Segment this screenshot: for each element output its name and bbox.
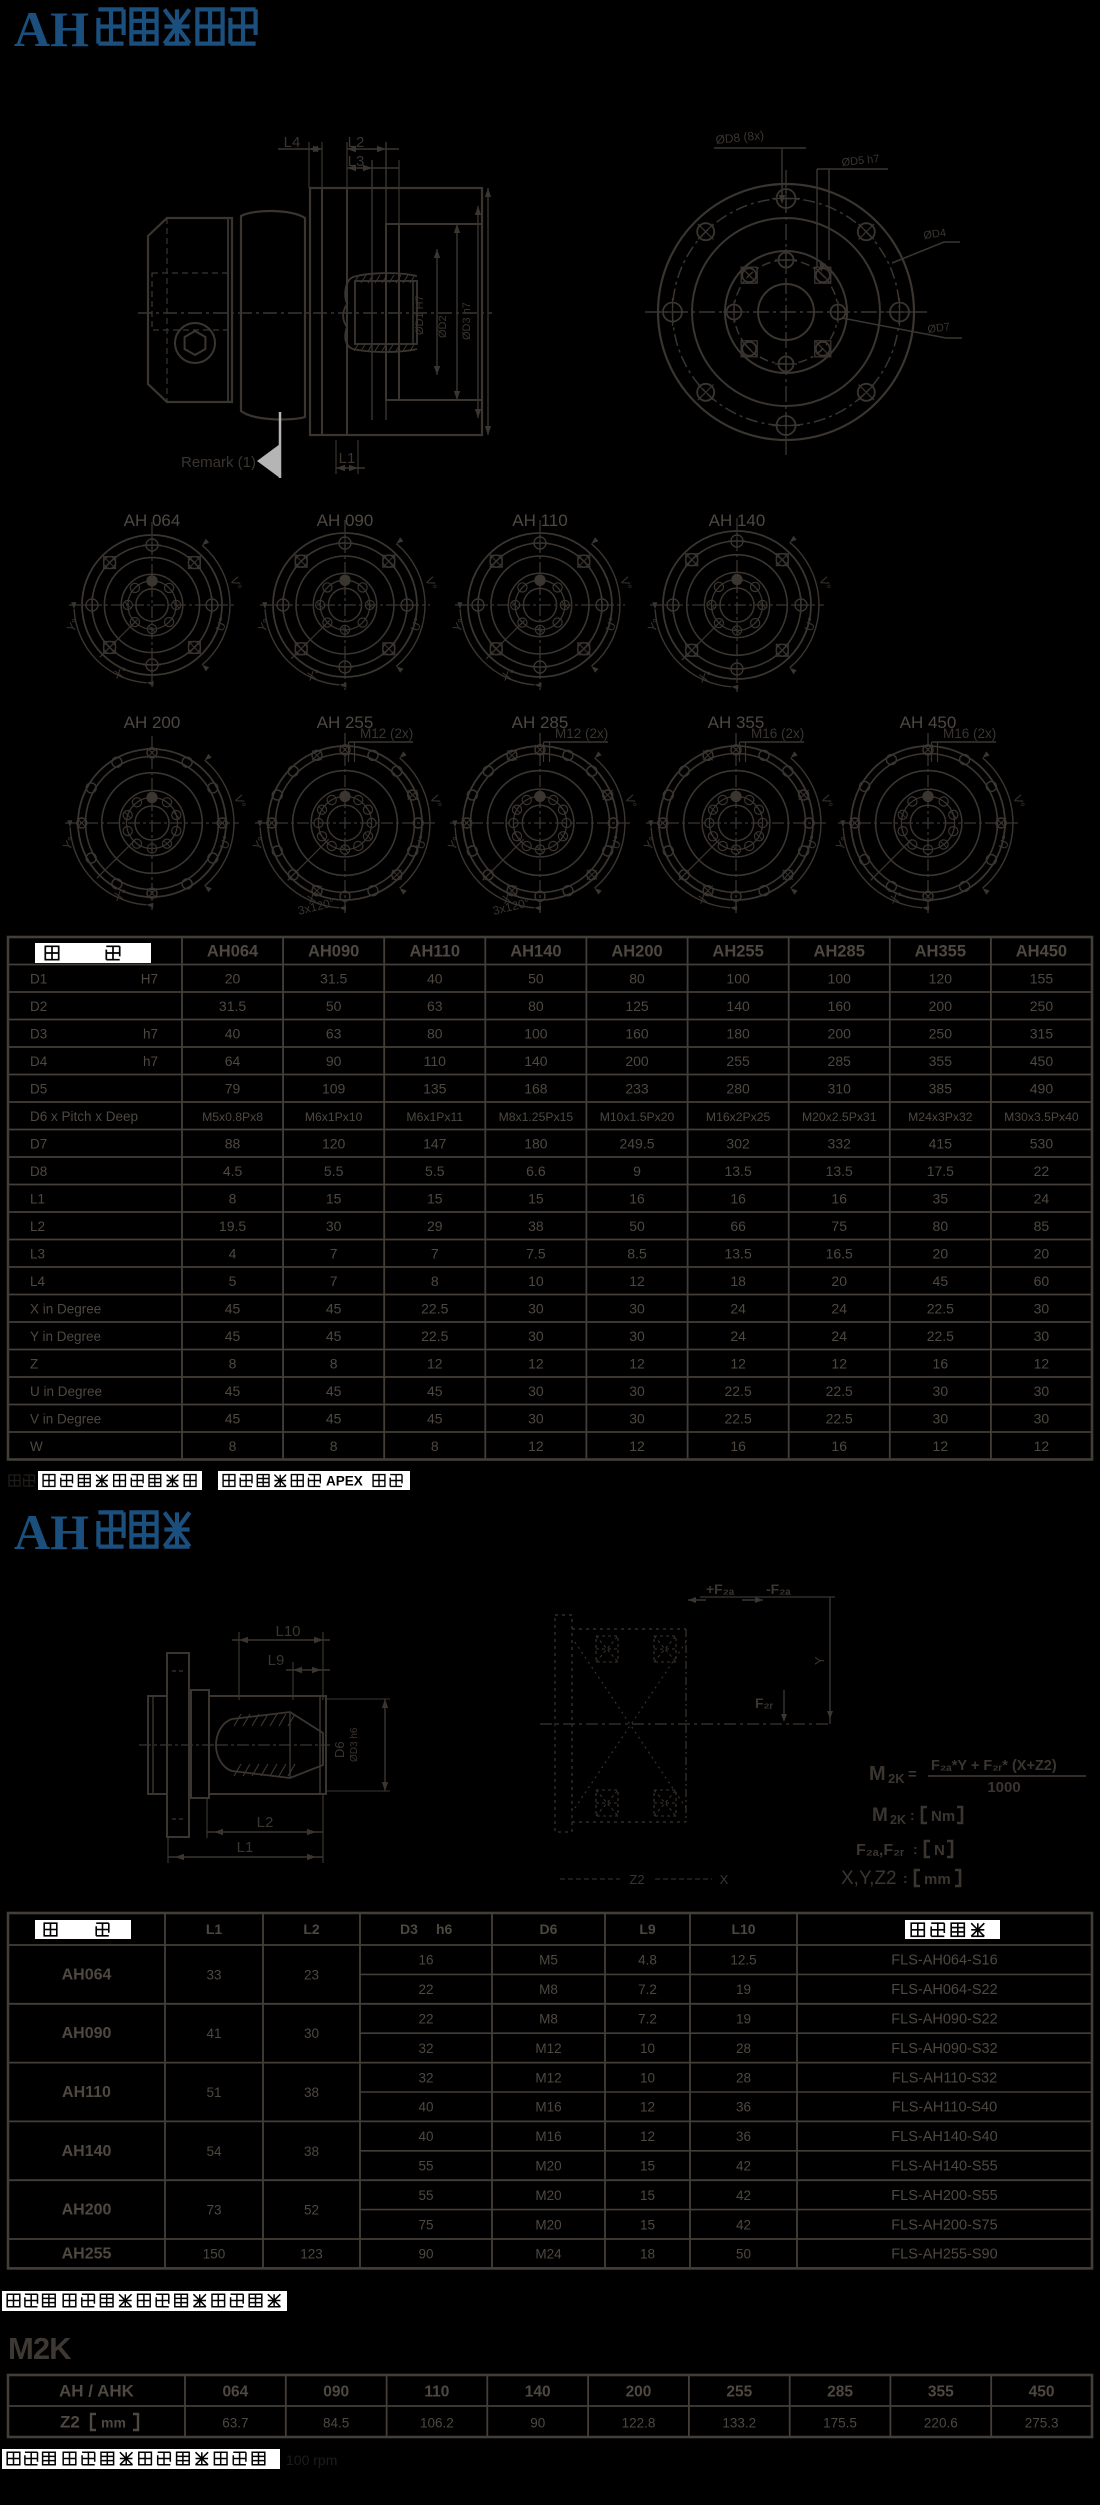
svg-text:30: 30 — [933, 1383, 949, 1399]
svg-text:AH140: AH140 — [510, 942, 561, 960]
svg-text:M10x1.5Px20: M10x1.5Px20 — [600, 1110, 675, 1124]
svg-text:66: 66 — [730, 1218, 746, 1234]
svg-text:16: 16 — [831, 1438, 847, 1454]
svg-text:18: 18 — [730, 1273, 746, 1289]
svg-text:FLS-AH064-S16: FLS-AH064-S16 — [891, 1953, 997, 1969]
svg-text:12: 12 — [629, 1355, 645, 1371]
svg-text:12.5: 12.5 — [730, 1953, 756, 1968]
svg-text:45: 45 — [427, 1410, 443, 1426]
svg-text:30: 30 — [1034, 1383, 1050, 1399]
svg-text:30: 30 — [629, 1383, 645, 1399]
svg-text:24: 24 — [831, 1300, 847, 1316]
svg-text:180: 180 — [524, 1135, 548, 1151]
svg-text:16: 16 — [730, 1190, 746, 1206]
svg-text:D3: D3 — [400, 1921, 418, 1937]
svg-text:285: 285 — [828, 1053, 852, 1069]
svg-text:45: 45 — [326, 1328, 342, 1344]
svg-text:mm: mm — [924, 1871, 951, 1888]
svg-text:M16 (2x): M16 (2x) — [943, 726, 996, 741]
svg-text::: : — [903, 1870, 908, 1886]
svg-text:90: 90 — [326, 1053, 342, 1069]
svg-text:38: 38 — [304, 2144, 319, 2159]
svg-text:160: 160 — [625, 1025, 649, 1041]
svg-text:Y: Y — [812, 1656, 827, 1665]
svg-text:FLS-AH255-S90: FLS-AH255-S90 — [891, 2247, 997, 2263]
svg-text:22.5: 22.5 — [421, 1328, 448, 1344]
svg-text:249.5: 249.5 — [619, 1135, 654, 1151]
svg-text:L9: L9 — [268, 1652, 285, 1669]
svg-text:30: 30 — [528, 1410, 544, 1426]
svg-text:33: 33 — [206, 1967, 221, 1982]
svg-text:M6x1Px10: M6x1Px10 — [305, 1110, 363, 1124]
svg-text:h7: h7 — [143, 1054, 158, 1069]
svg-text:D8: D8 — [30, 1164, 47, 1179]
svg-text:Z: Z — [30, 1356, 38, 1371]
svg-text:ØD3 h6: ØD3 h6 — [349, 1727, 360, 1762]
svg-text:M30x3.5Px40: M30x3.5Px40 — [1004, 1110, 1079, 1124]
svg-text:AH110: AH110 — [410, 942, 460, 960]
svg-text:250: 250 — [1030, 998, 1054, 1014]
svg-text:16: 16 — [730, 1438, 746, 1454]
svg-text:H7: H7 — [141, 971, 158, 986]
svg-text:5: 5 — [229, 1273, 237, 1289]
svg-text:AH140: AH140 — [62, 2143, 112, 2160]
svg-text:Y in Degree: Y in Degree — [30, 1329, 101, 1344]
svg-text:D1: D1 — [30, 971, 47, 986]
svg-text:302: 302 — [726, 1135, 750, 1151]
svg-text:45: 45 — [326, 1410, 342, 1426]
svg-text:22: 22 — [418, 1982, 433, 1997]
svg-text:AH200: AH200 — [611, 942, 662, 960]
svg-text:FLS-AH140-S40: FLS-AH140-S40 — [891, 2129, 997, 2145]
svg-text:385: 385 — [929, 1080, 953, 1096]
svg-text:255: 255 — [726, 2384, 752, 2401]
svg-text:50: 50 — [629, 1218, 645, 1234]
svg-text:22.5: 22.5 — [421, 1300, 448, 1316]
svg-text:415: 415 — [929, 1135, 953, 1151]
svg-text:200: 200 — [929, 998, 953, 1014]
svg-text:FLS-AH200-S75: FLS-AH200-S75 — [891, 2217, 997, 2233]
svg-text:M16: M16 — [535, 2100, 561, 2115]
svg-text:15: 15 — [640, 2188, 655, 2203]
svg-text:16: 16 — [418, 1953, 433, 1968]
svg-text:12: 12 — [933, 1438, 949, 1454]
svg-text:D6: D6 — [332, 1741, 347, 1758]
svg-text:L2: L2 — [30, 1219, 45, 1234]
svg-text:AH255: AH255 — [62, 2246, 112, 2263]
svg-text:280: 280 — [726, 1080, 750, 1096]
svg-text:30: 30 — [629, 1300, 645, 1316]
svg-text:40: 40 — [418, 2129, 433, 2144]
svg-text:332: 332 — [828, 1135, 852, 1151]
svg-text:55: 55 — [418, 2159, 433, 2174]
svg-text:135: 135 — [423, 1080, 447, 1096]
svg-text:FLS-AH090-S22: FLS-AH090-S22 — [891, 2012, 997, 2028]
svg-text:AH285: AH285 — [814, 942, 865, 960]
svg-text:AH355: AH355 — [915, 942, 966, 960]
svg-text:4.8: 4.8 — [638, 1953, 657, 1968]
svg-text:45: 45 — [326, 1383, 342, 1399]
svg-text:64: 64 — [225, 1053, 241, 1069]
svg-text:200: 200 — [626, 2384, 652, 2401]
svg-text:=: = — [908, 1766, 917, 1783]
svg-text:32: 32 — [418, 2041, 433, 2056]
svg-text:100 rpm: 100 rpm — [286, 2452, 337, 2468]
svg-text:35: 35 — [933, 1190, 949, 1206]
svg-text:M6x1Px11: M6x1Px11 — [406, 1110, 463, 1124]
svg-text:FLS-AH140-S55: FLS-AH140-S55 — [891, 2159, 997, 2175]
svg-text:12: 12 — [1034, 1438, 1050, 1454]
svg-text:FLS-AH200-S55: FLS-AH200-S55 — [891, 2188, 997, 2204]
svg-text:12: 12 — [640, 2100, 655, 2115]
svg-text:22.5: 22.5 — [724, 1383, 751, 1399]
svg-text:FLS-AH090-S32: FLS-AH090-S32 — [891, 2041, 997, 2057]
svg-text:54: 54 — [206, 2144, 222, 2159]
svg-text:7.2: 7.2 — [638, 1982, 657, 1997]
svg-text:D4: D4 — [30, 1054, 48, 1069]
svg-text:M12 (2x): M12 (2x) — [555, 726, 608, 741]
svg-text:D5: D5 — [30, 1081, 47, 1096]
svg-text:8: 8 — [431, 1273, 439, 1289]
svg-text:L4: L4 — [30, 1274, 46, 1289]
svg-text:220.6: 220.6 — [924, 2416, 958, 2431]
svg-text:M16x2Px25: M16x2Px25 — [706, 1110, 771, 1124]
svg-text:140: 140 — [726, 998, 750, 1014]
svg-text:X,Y,Z2: X,Y,Z2 — [841, 1868, 897, 1889]
svg-text:80: 80 — [629, 970, 645, 986]
svg-text:22: 22 — [1034, 1163, 1050, 1179]
svg-text:22.5: 22.5 — [724, 1410, 751, 1426]
svg-text:28: 28 — [736, 2041, 751, 2056]
svg-text:85: 85 — [1034, 1218, 1050, 1234]
svg-text::: : — [913, 1841, 918, 1857]
svg-text:M16: M16 — [535, 2129, 561, 2144]
svg-text:24: 24 — [831, 1328, 847, 1344]
svg-text:45: 45 — [225, 1383, 241, 1399]
svg-text:19: 19 — [736, 2012, 751, 2027]
svg-text:51: 51 — [206, 2085, 221, 2100]
svg-text:80: 80 — [528, 998, 544, 1014]
svg-text:88: 88 — [225, 1135, 241, 1151]
svg-text:L1: L1 — [30, 1191, 45, 1206]
svg-text:12: 12 — [528, 1438, 544, 1454]
svg-text:L3: L3 — [30, 1246, 45, 1261]
svg-text:45: 45 — [225, 1410, 241, 1426]
svg-text:9: 9 — [633, 1163, 641, 1179]
svg-text:M24: M24 — [535, 2247, 562, 2262]
svg-text:160: 160 — [828, 998, 852, 1014]
svg-text:D6: D6 — [540, 1921, 558, 1937]
svg-text:120: 120 — [322, 1135, 346, 1151]
svg-text:45: 45 — [427, 1383, 443, 1399]
svg-text:AH 200: AH 200 — [124, 713, 181, 732]
svg-text:30: 30 — [528, 1383, 544, 1399]
svg-text:122.8: 122.8 — [622, 2416, 656, 2431]
svg-text:D6 x Pitch x Deep: D6 x Pitch x Deep — [30, 1109, 138, 1124]
svg-text:AH064: AH064 — [62, 1966, 112, 1983]
svg-text:24: 24 — [1034, 1190, 1050, 1206]
svg-text:L9: L9 — [639, 1921, 656, 1937]
svg-text:7.5: 7.5 — [526, 1245, 546, 1261]
svg-text:064: 064 — [222, 2384, 248, 2401]
svg-text:42: 42 — [736, 2159, 751, 2174]
svg-text:15: 15 — [640, 2217, 655, 2232]
svg-text:M20: M20 — [535, 2159, 561, 2174]
svg-text:15: 15 — [427, 1190, 443, 1206]
svg-text:12: 12 — [629, 1273, 645, 1289]
svg-text:2K: 2K — [890, 1813, 906, 1827]
svg-text:13.5: 13.5 — [826, 1163, 853, 1179]
svg-text:19.5: 19.5 — [219, 1218, 246, 1234]
svg-text:60: 60 — [1034, 1273, 1050, 1289]
svg-text:100: 100 — [726, 970, 750, 986]
svg-text:36: 36 — [736, 2129, 751, 2144]
svg-text:63: 63 — [326, 1025, 342, 1041]
svg-text:8: 8 — [229, 1355, 237, 1371]
svg-text:AH: AH — [14, 1504, 89, 1560]
svg-text:16.5: 16.5 — [826, 1245, 853, 1261]
svg-text:Nm: Nm — [931, 1808, 955, 1825]
svg-text:10: 10 — [640, 2070, 655, 2085]
svg-text:30: 30 — [304, 2026, 319, 2041]
svg-text:285: 285 — [827, 2384, 853, 2401]
svg-text:200: 200 — [828, 1025, 852, 1041]
svg-text:30: 30 — [326, 1218, 342, 1234]
svg-text:15: 15 — [326, 1190, 342, 1206]
svg-text:8: 8 — [330, 1438, 338, 1454]
svg-text:100: 100 — [524, 1025, 548, 1041]
svg-text:L10: L10 — [275, 1623, 300, 1640]
svg-text:75: 75 — [831, 1218, 847, 1234]
svg-text:APEX: APEX — [326, 1474, 363, 1489]
svg-text:133.2: 133.2 — [722, 2416, 756, 2431]
svg-text:7: 7 — [330, 1245, 338, 1261]
svg-text:4.5: 4.5 — [223, 1163, 243, 1179]
svg-text:42: 42 — [736, 2217, 751, 2232]
svg-text:5.5: 5.5 — [324, 1163, 344, 1179]
svg-text:12: 12 — [831, 1355, 847, 1371]
svg-text:8: 8 — [330, 1355, 338, 1371]
svg-text:M12: M12 — [535, 2041, 561, 2056]
svg-text:250: 250 — [929, 1025, 953, 1041]
svg-text:450: 450 — [1030, 1053, 1054, 1069]
svg-text:F₂ᵣ: F₂ᵣ — [755, 1695, 774, 1711]
svg-text:36: 36 — [736, 2100, 751, 2115]
svg-text:M20: M20 — [535, 2188, 561, 2203]
svg-text:15: 15 — [528, 1190, 544, 1206]
svg-text:22.5: 22.5 — [826, 1410, 853, 1426]
svg-text:Z2: Z2 — [629, 1872, 644, 1887]
svg-text:M8x1.25Px15: M8x1.25Px15 — [499, 1110, 574, 1124]
svg-text:M5: M5 — [539, 1953, 558, 1968]
svg-text:175.5: 175.5 — [823, 2416, 857, 2431]
svg-text:110: 110 — [424, 1053, 447, 1069]
svg-text:75: 75 — [418, 2217, 433, 2232]
svg-text:M12: M12 — [535, 2070, 561, 2085]
svg-text:8.5: 8.5 — [627, 1245, 647, 1261]
svg-text:M2K: M2K — [8, 2331, 72, 2366]
svg-text:233: 233 — [625, 1080, 649, 1096]
svg-text:X in Degree: X in Degree — [30, 1301, 101, 1316]
svg-text:490: 490 — [1030, 1080, 1054, 1096]
svg-text:ØD2: ØD2 — [437, 315, 449, 338]
svg-text:AH090: AH090 — [308, 942, 359, 960]
svg-text:30: 30 — [933, 1410, 949, 1426]
svg-text:80: 80 — [427, 1025, 443, 1041]
svg-text:16: 16 — [629, 1190, 645, 1206]
svg-text:M: M — [872, 1805, 888, 1826]
svg-text:7.2: 7.2 — [638, 2012, 657, 2027]
svg-text:F₂ₐ*Y + F₂ᵣ* (X+Z2): F₂ₐ*Y + F₂ᵣ* (X+Z2) — [931, 1758, 1057, 1774]
svg-text:h7: h7 — [143, 1026, 158, 1041]
svg-text:M20x2.5Px31: M20x2.5Px31 — [802, 1110, 877, 1124]
svg-text:V in Degree: V in Degree — [30, 1411, 101, 1426]
svg-text:2K: 2K — [888, 1771, 905, 1786]
svg-text:63: 63 — [427, 998, 443, 1014]
svg-text:30: 30 — [1034, 1410, 1050, 1426]
svg-text:22.5: 22.5 — [927, 1328, 954, 1344]
svg-text:AH090: AH090 — [62, 2025, 112, 2042]
svg-text:AH200: AH200 — [62, 2202, 112, 2219]
svg-text:24: 24 — [730, 1328, 746, 1344]
svg-text:AH110: AH110 — [62, 2084, 111, 2101]
svg-text:M16 (2x): M16 (2x) — [751, 726, 804, 741]
svg-text:N: N — [934, 1842, 945, 1859]
svg-text:FLS-AH110-S32: FLS-AH110-S32 — [892, 2070, 997, 2086]
svg-text:28: 28 — [736, 2070, 751, 2085]
svg-text:20: 20 — [933, 1245, 949, 1261]
svg-text:5.5: 5.5 — [425, 1163, 445, 1179]
svg-text:18: 18 — [640, 2247, 655, 2262]
svg-text:30: 30 — [1034, 1300, 1050, 1316]
svg-text:8: 8 — [229, 1190, 237, 1206]
svg-text:D7: D7 — [30, 1136, 47, 1151]
svg-text:23: 23 — [304, 1967, 319, 1982]
svg-text:315: 315 — [1030, 1025, 1054, 1041]
svg-text:10: 10 — [528, 1273, 544, 1289]
svg-text:24: 24 — [730, 1300, 746, 1316]
svg-text:22.5: 22.5 — [927, 1300, 954, 1316]
svg-text:4: 4 — [229, 1245, 237, 1261]
svg-text:450: 450 — [1029, 2384, 1055, 2401]
svg-text:20: 20 — [831, 1273, 847, 1289]
svg-text:45: 45 — [225, 1300, 241, 1316]
svg-text:AH064: AH064 — [207, 942, 259, 960]
svg-text:M24x3Px32: M24x3Px32 — [908, 1110, 973, 1124]
svg-text:29: 29 — [427, 1218, 443, 1234]
svg-text:F₂ₐ,F₂ᵣ: F₂ₐ,F₂ᵣ — [856, 1842, 904, 1859]
svg-text:40: 40 — [225, 1025, 241, 1041]
svg-text:M: M — [869, 1763, 886, 1785]
svg-text:355: 355 — [928, 2384, 954, 2401]
svg-text:13.5: 13.5 — [724, 1163, 751, 1179]
svg-text:12: 12 — [1034, 1355, 1050, 1371]
svg-text:90: 90 — [418, 2247, 433, 2262]
svg-text:16: 16 — [831, 1190, 847, 1206]
svg-text:12: 12 — [629, 1438, 645, 1454]
svg-text:7: 7 — [330, 1273, 338, 1289]
svg-text:22: 22 — [418, 2012, 433, 2027]
svg-text:mm: mm — [101, 2415, 126, 2431]
svg-text:120: 120 — [929, 970, 953, 986]
svg-text:090: 090 — [323, 2384, 349, 2401]
svg-text:20: 20 — [1034, 1245, 1050, 1261]
svg-text:16: 16 — [933, 1355, 949, 1371]
svg-text:22.5: 22.5 — [826, 1383, 853, 1399]
svg-text:20: 20 — [225, 970, 241, 986]
svg-text:180: 180 — [726, 1025, 750, 1041]
svg-text:30: 30 — [629, 1328, 645, 1344]
svg-text:AH / AHK: AH / AHK — [59, 2382, 135, 2401]
svg-text:D2: D2 — [30, 999, 47, 1014]
svg-text:32: 32 — [418, 2070, 433, 2085]
svg-text:U in Degree: U in Degree — [30, 1384, 102, 1399]
svg-text:6.6: 6.6 — [526, 1163, 546, 1179]
svg-text:109: 109 — [322, 1080, 346, 1096]
svg-text:50: 50 — [736, 2247, 751, 2262]
svg-text:12: 12 — [528, 1355, 544, 1371]
svg-text:355: 355 — [929, 1053, 953, 1069]
svg-text:M5x0.8Px8: M5x0.8Px8 — [202, 1110, 263, 1124]
svg-text:45: 45 — [933, 1273, 949, 1289]
svg-text:7: 7 — [431, 1245, 439, 1261]
svg-text:13.5: 13.5 — [724, 1245, 751, 1261]
svg-text:L2: L2 — [303, 1921, 320, 1937]
svg-text:W: W — [30, 1439, 43, 1454]
svg-text:147: 147 — [423, 1135, 447, 1151]
svg-text:31.5: 31.5 — [320, 970, 347, 986]
svg-text:90: 90 — [530, 2416, 545, 2431]
svg-text:L10: L10 — [731, 1921, 755, 1937]
svg-text:15: 15 — [640, 2159, 655, 2174]
svg-text:275.3: 275.3 — [1025, 2416, 1059, 2431]
svg-text:80: 80 — [933, 1218, 949, 1234]
svg-text:30: 30 — [528, 1300, 544, 1316]
svg-text:110: 110 — [424, 2384, 449, 2401]
svg-text:D3: D3 — [30, 1026, 47, 1041]
svg-text:1000: 1000 — [987, 1779, 1020, 1796]
svg-text:FLS-AH064-S22: FLS-AH064-S22 — [891, 1982, 997, 1998]
svg-text:50: 50 — [528, 970, 544, 986]
svg-text:140: 140 — [525, 2384, 551, 2401]
svg-text:38: 38 — [528, 1218, 544, 1234]
svg-text:FLS-AH110-S40: FLS-AH110-S40 — [892, 2100, 997, 2116]
svg-text::: : — [910, 1807, 915, 1823]
svg-text:100: 100 — [828, 970, 852, 986]
svg-text:M12 (2x): M12 (2x) — [360, 726, 413, 741]
svg-text:123: 123 — [300, 2247, 323, 2262]
svg-text:8: 8 — [229, 1438, 237, 1454]
svg-text:30: 30 — [1034, 1328, 1050, 1344]
svg-text:Remark (1): Remark (1) — [181, 454, 256, 471]
svg-text:L1: L1 — [206, 1921, 223, 1937]
svg-text:L1: L1 — [339, 450, 356, 467]
svg-text:AH255: AH255 — [712, 942, 763, 960]
svg-text:-F₂ₐ: -F₂ₐ — [766, 1581, 791, 1597]
svg-text:530: 530 — [1030, 1135, 1054, 1151]
svg-text:12: 12 — [730, 1355, 746, 1371]
svg-text:M20: M20 — [535, 2217, 561, 2232]
svg-text:M8: M8 — [539, 1982, 558, 1997]
svg-text:45: 45 — [225, 1328, 241, 1344]
svg-text:38: 38 — [304, 2085, 319, 2100]
svg-text:41: 41 — [206, 2026, 221, 2041]
svg-text:30: 30 — [629, 1410, 645, 1426]
svg-text:84.5: 84.5 — [323, 2416, 349, 2431]
svg-text:52: 52 — [304, 2203, 319, 2218]
svg-text:19: 19 — [736, 1982, 751, 1997]
svg-text:140: 140 — [524, 1053, 548, 1069]
